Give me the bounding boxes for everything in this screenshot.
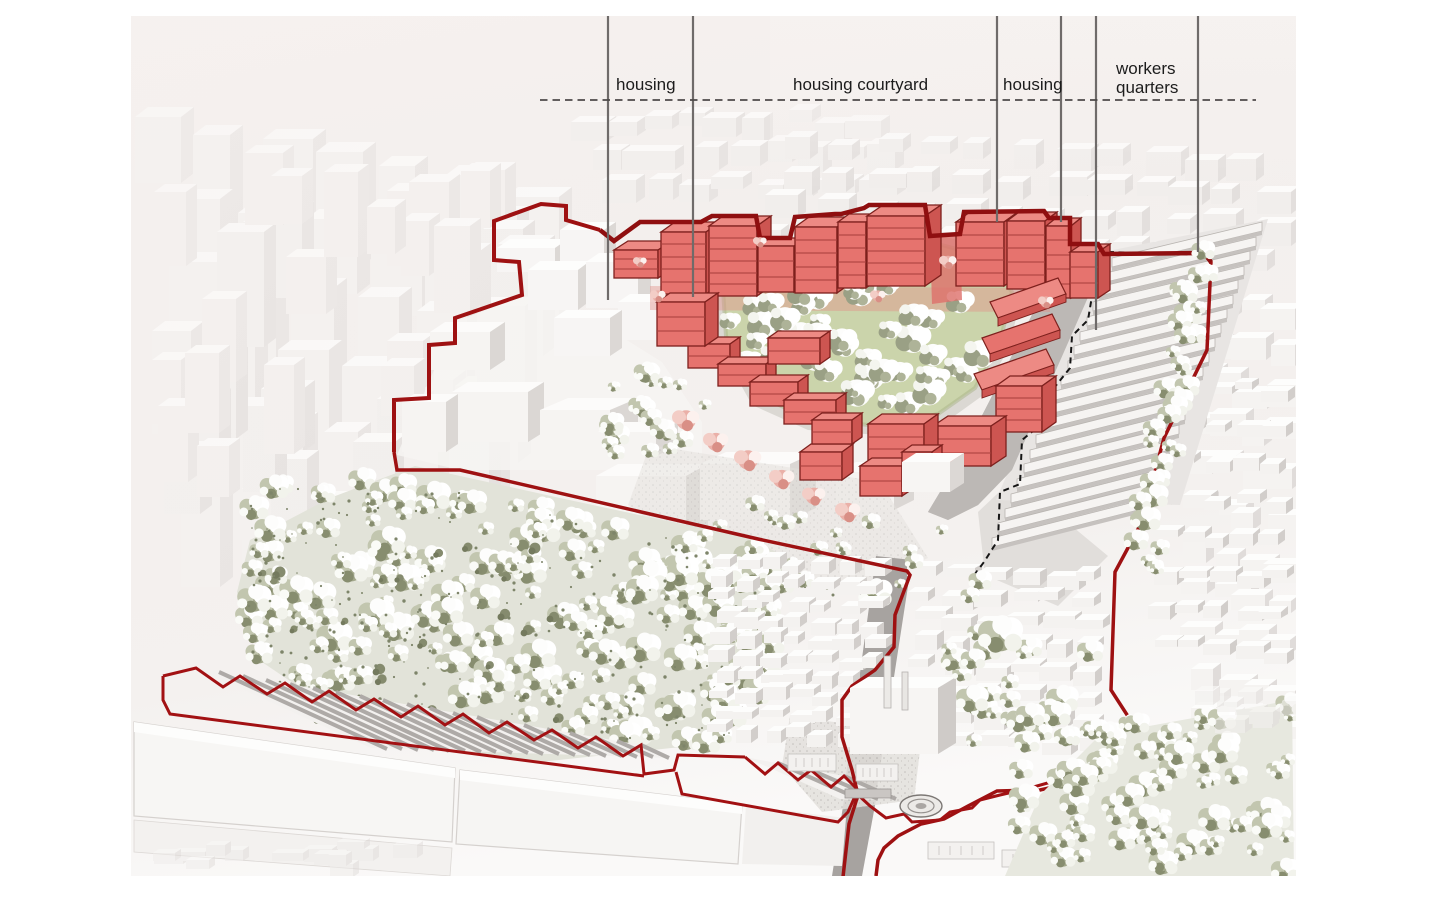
svg-text:housing courtyard: housing courtyard (793, 75, 928, 94)
svg-text:workers: workers (1115, 59, 1176, 78)
svg-text:quarters: quarters (1116, 78, 1178, 97)
svg-text:housing: housing (1003, 75, 1063, 94)
svg-text:housing: housing (616, 75, 676, 94)
